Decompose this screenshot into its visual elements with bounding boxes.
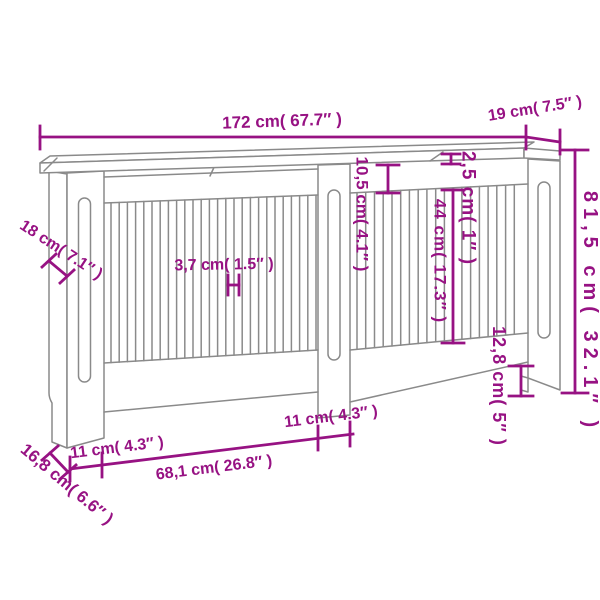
dim-label-top-depth: 19 cm( 7.5″ ) — [487, 93, 583, 125]
dim-label-slat-width: 3,7 cm( 1.5″ ) — [174, 256, 274, 275]
radiator-cover-drawing — [40, 142, 560, 448]
dim-label-total-width: 172 cm( 67.7″ ) — [222, 109, 342, 132]
dim-label-total-height: 81,5 cm( 32.1″ ) — [579, 191, 600, 433]
dim-bottom-rail-height: 12,8 cm( 5″ ) — [489, 326, 533, 446]
dim-label-bottom-rail-height: 12,8 cm( 5″ ) — [489, 326, 509, 446]
dim-label-top-rail-height: 10,5 cm( 4.1″ ) — [353, 157, 372, 272]
dim-bottom-chain: 11 cm( 4.3″ ) 68,1 cm( 26.8″ ) 11 cm( 4.… — [69, 403, 378, 484]
dim-label-slat-length: 44 cm( 17.3″ ) — [431, 199, 450, 323]
dim-total-width: 172 cm( 67.7″ ) — [40, 109, 526, 149]
middle-stile-slot — [328, 190, 340, 360]
dim-label-top-board-thickness: 2,5 cm( 1″ ) — [458, 151, 479, 265]
dim-total-height: 81,5 cm( 32.1″ ) — [562, 150, 600, 433]
diagram-canvas: 172 cm( 67.7″ ) 19 cm( 7.5″ ) 81,5 cm( 3… — [0, 0, 600, 600]
right-stile-slot — [538, 182, 550, 338]
top-shelf-right-end — [524, 148, 560, 160]
dimension-diagram: 172 cm( 67.7″ ) 19 cm( 7.5″ ) 81,5 cm( 3… — [0, 0, 600, 600]
left-side-panel-face — [49, 171, 67, 448]
left-stile-slot — [79, 198, 91, 382]
left-slat-panel — [111, 195, 316, 363]
left-bottom-rail-edge — [104, 392, 318, 412]
